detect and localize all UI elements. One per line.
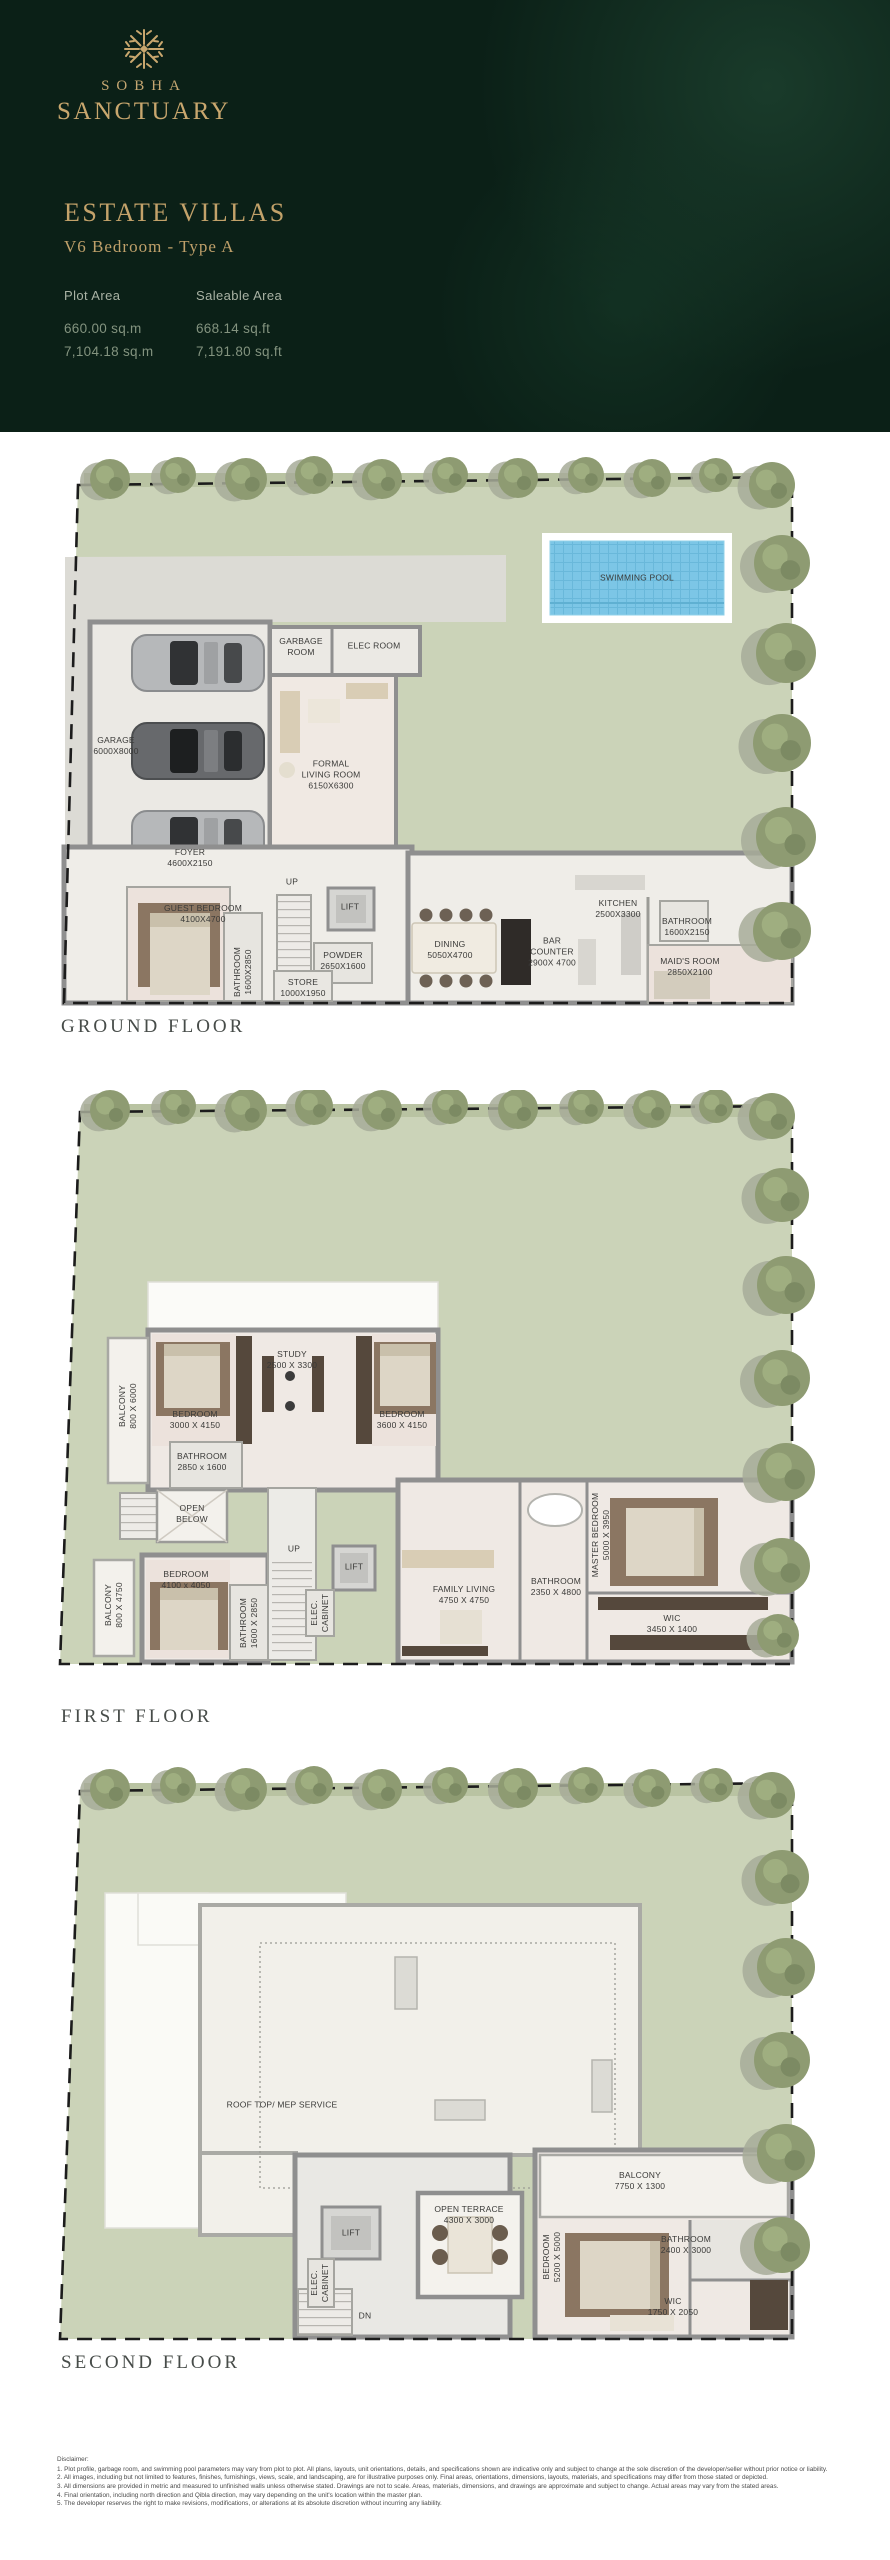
- floor-title-first: FIRST FLOOR: [61, 1706, 212, 1728]
- label-lift: LIFT: [345, 1562, 363, 1573]
- label-foyer: FOYER4600X2150: [167, 847, 212, 869]
- label-balcony: BALCONY7750 X 1300: [615, 2170, 665, 2192]
- brochure-page: SOBHA SANCTUARY ESTATE VILLAS V6 Bedroom…: [0, 0, 890, 2560]
- second-floor-labels: ROOF TOP/ MEP SERVICELIFTELEC.CABINETDNO…: [50, 1765, 840, 2345]
- label-bedroom: BEDROOM3000 X 4150: [170, 1409, 220, 1431]
- unit-type-subtitle: V6 Bedroom - Type A: [64, 237, 234, 257]
- disclaimer-line: 4. Final orientation, including north di…: [57, 2492, 855, 2501]
- disclaimer: Disclaimer: 1. Plot profile, garbage roo…: [57, 2456, 855, 2509]
- label-study: STUDY2500 X 3300: [267, 1349, 317, 1371]
- label-swimming-pool: SWIMMING POOL: [600, 573, 674, 584]
- coral-starburst-icon: [121, 26, 167, 72]
- label-family-living: FAMILY LIVING4750 X 4750: [433, 1584, 495, 1606]
- label-wic: WIC1750 X 2050: [648, 2296, 698, 2318]
- label-bathroom: BATHROOM1600 X 2850: [238, 1598, 260, 1648]
- label-open: OPENBELOW: [176, 1503, 208, 1525]
- saleable-area-value-sqft: 7,191.80 sq.ft: [196, 340, 282, 363]
- brand-name-sobha: SOBHA: [56, 78, 232, 95]
- plot-area-value-sqft: 7,104.18 sq.m: [64, 340, 153, 363]
- disclaimer-line: 2. All images, including but not limited…: [57, 2474, 855, 2483]
- saleable-area-label: Saleable Area: [196, 288, 282, 303]
- label-elec-room: ELEC ROOM: [348, 641, 401, 652]
- disclaimer-line: 5. The developer reserves the right to m…: [57, 2500, 855, 2509]
- label-guest-bedroom: GUEST BEDROOM4100X4700: [164, 903, 242, 925]
- label-bathroom: BATHROOM1600X2150: [662, 916, 712, 938]
- label-up: UP: [288, 1544, 300, 1555]
- saleable-area-column: Saleable Area 668.14 sq.ft 7,191.80 sq.f…: [196, 288, 282, 363]
- plot-area-column: Plot Area 660.00 sq.m 7,104.18 sq.m: [64, 288, 153, 363]
- label-bathroom: BATHROOM2400 X 3000: [661, 2234, 711, 2256]
- label-bedroom: BEDROOM4100 x 4050: [162, 1569, 211, 1591]
- label-lift: LIFT: [342, 2228, 360, 2239]
- brochure-header: SOBHA SANCTUARY ESTATE VILLAS V6 Bedroom…: [0, 0, 890, 432]
- label-lift: LIFT: [341, 902, 359, 913]
- plot-area-label: Plot Area: [64, 288, 153, 303]
- label-kitchen: KITCHEN2500X3300: [595, 898, 640, 920]
- label-elec: ELEC.CABINET: [309, 2264, 331, 2302]
- label-powder: POWDER2650X1600: [320, 950, 365, 972]
- label-maid-s-room: MAID'S ROOM2850X2100: [660, 956, 720, 978]
- saleable-area-value-sqm: 668.14 sq.ft: [196, 317, 282, 340]
- first-floor-labels: BALCONY800 X 6000BEDROOM3000 X 4150STUDY…: [50, 1090, 840, 1670]
- first-floor-plan: BALCONY800 X 6000BEDROOM3000 X 4150STUDY…: [50, 1090, 840, 1670]
- label-bedroom: BEDROOM3600 X 4150: [377, 1409, 427, 1431]
- label-balcony: BALCONY800 X 6000: [117, 1383, 139, 1428]
- label-garage: GARAGE6000X8000: [93, 735, 138, 757]
- ground-floor-labels: SWIMMING POOLGARAGE6000X8000GARBAGEROOME…: [50, 445, 840, 1017]
- collection-title: ESTATE VILLAS: [64, 198, 287, 228]
- label-open-terrace: OPEN TERRACE4300 X 3000: [434, 2204, 503, 2226]
- label-store: STORE1000X1950: [280, 977, 325, 999]
- brand-name-sanctuary: SANCTUARY: [56, 98, 232, 126]
- label-dn: DN: [359, 2311, 372, 2322]
- label-master-bedroom: MASTER BEDROOM5000 X 3950: [590, 1493, 612, 1578]
- second-floor-plan: ROOF TOP/ MEP SERVICELIFTELEC.CABINETDNO…: [50, 1765, 840, 2345]
- label-bathroom: BATHROOM1600X2850: [232, 947, 254, 997]
- label-bathroom: BATHROOM2350 X 4800: [531, 1576, 581, 1598]
- label-roof-top-mep-service: ROOF TOP/ MEP SERVICE: [227, 2100, 338, 2111]
- brand-logo: SOBHA SANCTUARY: [56, 26, 232, 126]
- label-formal: FORMALLIVING ROOM6150X6300: [302, 759, 361, 792]
- plot-area-value-sqm: 660.00 sq.m: [64, 317, 153, 340]
- label-dining: DINING5050X4700: [427, 939, 472, 961]
- label-balcony: BALCONY800 X 4750: [103, 1582, 125, 1627]
- label-wic: WIC3450 X 1400: [647, 1613, 697, 1635]
- floor-title-ground: GROUND FLOOR: [61, 1016, 245, 1038]
- disclaimer-line: 3. All dimensions are provided in metric…: [57, 2483, 855, 2492]
- label-elec: ELEC.CABINET: [309, 1594, 331, 1632]
- label-bar: BARCOUNTER2900X 4700: [528, 936, 576, 969]
- disclaimer-title: Disclaimer:: [57, 2456, 855, 2465]
- label-up: UP: [286, 877, 298, 888]
- disclaimer-line: 1. Plot profile, garbage room, and swimm…: [57, 2466, 855, 2475]
- ground-floor-plan: SWIMMING POOLGARAGE6000X8000GARBAGEROOME…: [50, 445, 840, 1017]
- floor-title-second: SECOND FLOOR: [61, 2352, 240, 2374]
- label-bedroom: BEDROOM5200 X 5000: [541, 2232, 563, 2282]
- label-bathroom: BATHROOM2850 x 1600: [177, 1451, 227, 1473]
- label-garbage: GARBAGEROOM: [279, 636, 322, 658]
